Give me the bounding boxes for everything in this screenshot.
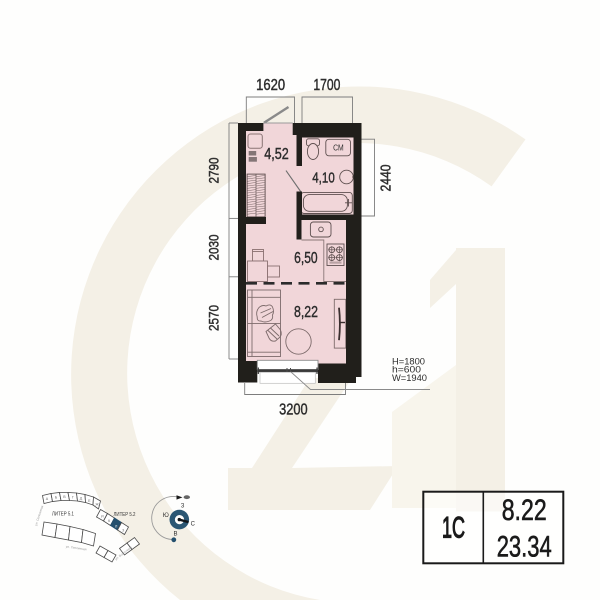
svg-text:W=1940: W=1940 bbox=[392, 373, 427, 383]
svg-text:В: В bbox=[173, 532, 177, 538]
svg-text:ЛИТЕР 5.2: ЛИТЕР 5.2 bbox=[114, 512, 136, 518]
svg-text:2570: 2570 bbox=[205, 305, 221, 331]
svg-text:З: З bbox=[181, 504, 185, 510]
svg-text:ЛИТЕР 5.1: ЛИТЕР 5.1 bbox=[52, 512, 74, 518]
svg-text:2030: 2030 bbox=[205, 234, 221, 260]
svg-text:И: И bbox=[101, 515, 104, 519]
svg-text:2440: 2440 bbox=[379, 165, 395, 192]
svg-text:6,50: 6,50 bbox=[294, 250, 318, 267]
svg-text:Ю: Ю bbox=[163, 513, 169, 519]
svg-text:С: С bbox=[191, 522, 196, 528]
svg-text:1700: 1700 bbox=[313, 77, 340, 94]
svg-text:4,10: 4,10 bbox=[312, 169, 335, 186]
svg-text:1С: 1С bbox=[442, 512, 465, 545]
svg-text:СМ: СМ bbox=[333, 143, 344, 152]
svg-text:3200: 3200 bbox=[279, 402, 308, 419]
svg-text:8,22: 8,22 bbox=[294, 304, 318, 321]
svg-text:Г: Г bbox=[72, 496, 74, 500]
svg-text:4,52: 4,52 bbox=[264, 146, 289, 163]
svg-text:2790: 2790 bbox=[205, 157, 221, 183]
svg-text:23.34: 23.34 bbox=[497, 531, 552, 564]
svg-text:8.22: 8.22 bbox=[502, 494, 547, 527]
svg-text:З: З bbox=[122, 529, 124, 533]
svg-text:1620: 1620 bbox=[256, 77, 285, 94]
